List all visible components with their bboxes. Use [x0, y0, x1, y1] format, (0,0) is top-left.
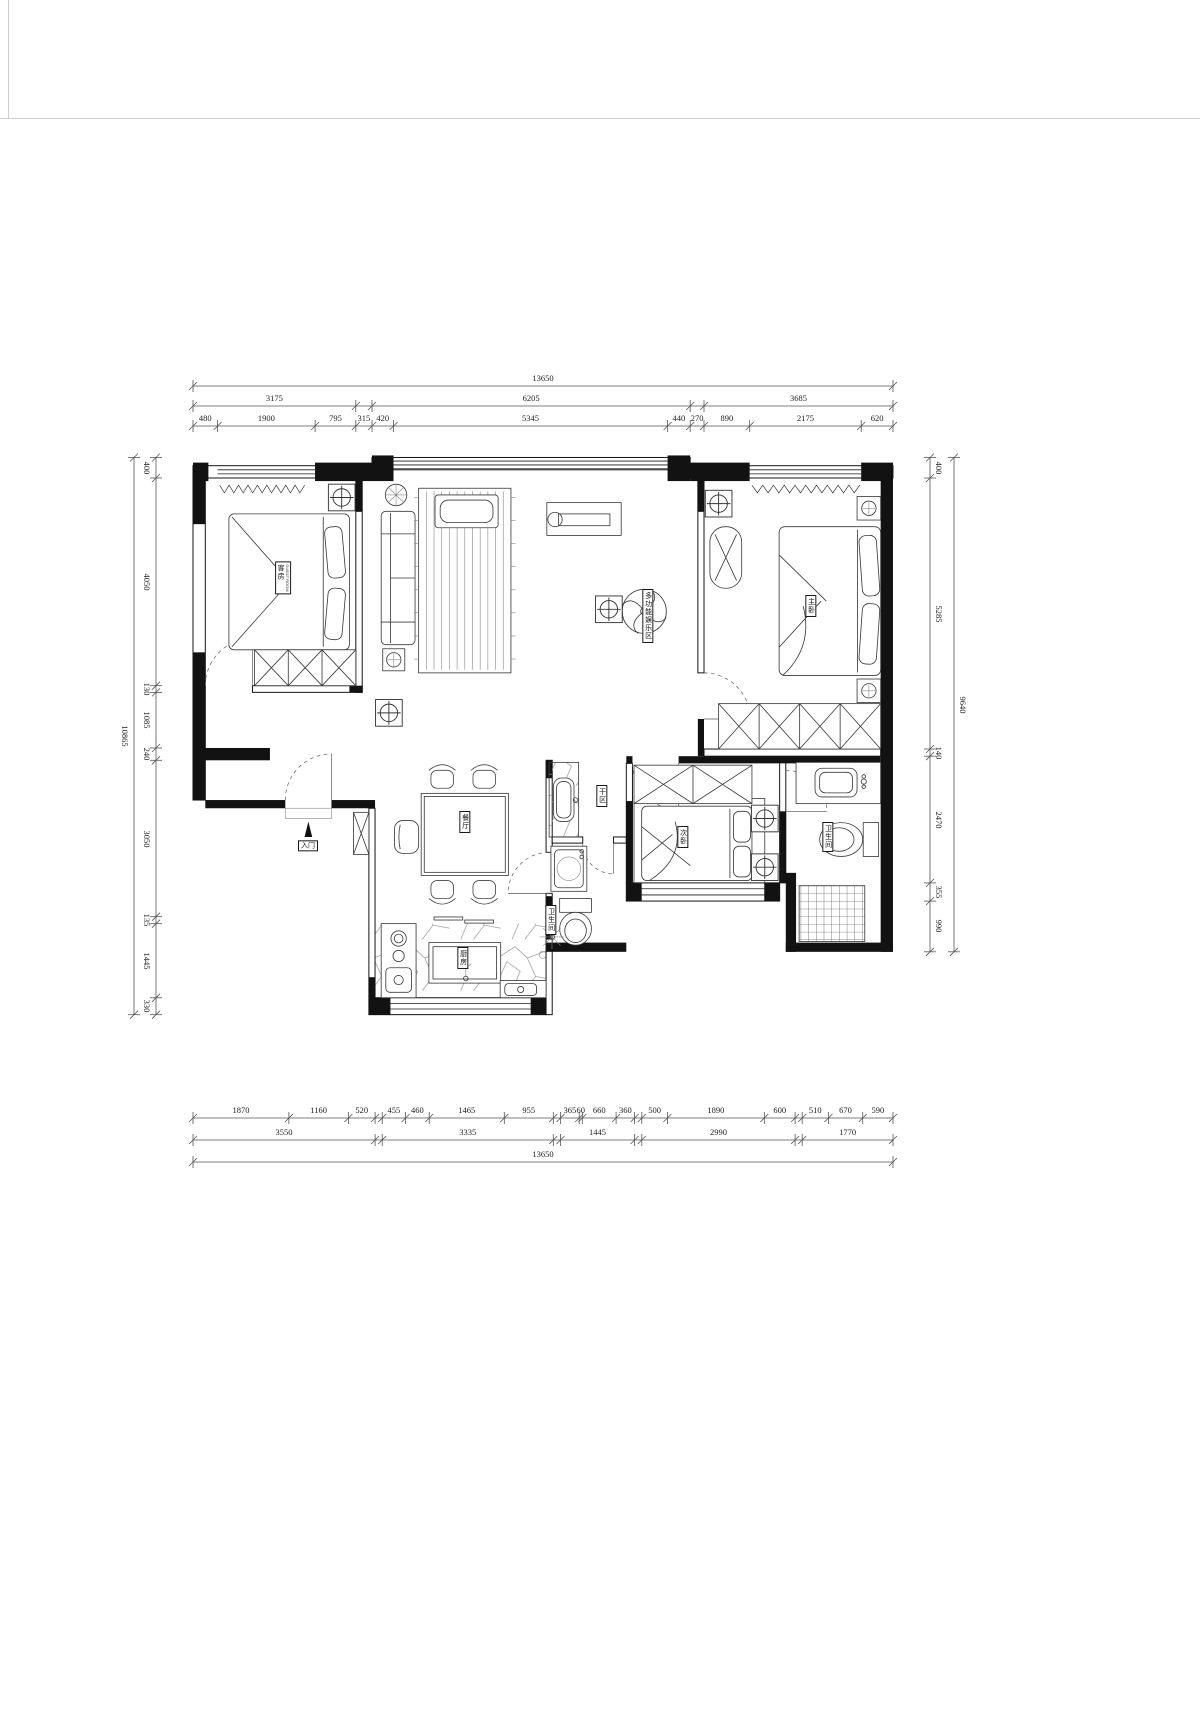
dim-label: 460: [411, 1105, 424, 1115]
room-label-guest: 客房 GUEST ROOM: [275, 561, 291, 594]
dim-label: 140: [934, 746, 944, 759]
dry-area-fixtures: [549, 762, 578, 837]
dim-label: 3335: [459, 1127, 476, 1137]
dim-label: 480: [199, 413, 212, 423]
dim-label: 270: [691, 413, 704, 423]
dim-label: 510: [809, 1105, 822, 1115]
guest-room-name-cn: 客房: [277, 564, 284, 591]
dim-label: 660: [593, 1105, 606, 1115]
dim-label: 10865: [120, 725, 130, 746]
room-label-second-bedroom: 次卧: [677, 826, 688, 848]
dim-label: 500: [648, 1105, 661, 1115]
second-bedroom-furniture: [634, 765, 778, 883]
dim-label: 990: [934, 920, 944, 933]
dim-label: 890: [720, 413, 733, 423]
dim-label: 520: [355, 1105, 368, 1115]
dim-label: 1085: [142, 712, 152, 729]
room-label-bath-right: 卫生间: [822, 822, 833, 852]
dim-label: 620: [871, 413, 884, 423]
dim-label: 1160: [310, 1105, 327, 1115]
dim-label: 4050: [142, 573, 152, 590]
dim-label: 135: [142, 914, 152, 927]
dim-label: 795: [329, 413, 342, 423]
guest-room-name-en: GUEST ROOM: [284, 564, 289, 591]
dim-label: 3050: [142, 830, 152, 847]
entrance-arrow-icon: [305, 822, 313, 837]
dim-label: 440: [673, 413, 686, 423]
dim-label: 420: [376, 413, 389, 423]
dim-label: 2470: [934, 811, 944, 828]
dim-label: 600: [773, 1105, 786, 1115]
dim-label: 3175: [266, 393, 283, 403]
dim-label: 365: [563, 1105, 576, 1115]
dim-label: 1900: [258, 413, 275, 423]
dim-label: 13650: [532, 373, 553, 383]
dim-label: 5285: [934, 605, 944, 622]
dim-label: 3685: [790, 393, 807, 403]
dim-label: 400: [934, 461, 944, 474]
dim-label: 1770: [839, 1127, 856, 1137]
room-label-dining: 餐厅: [459, 811, 470, 833]
room-label-master: 主卧: [805, 595, 816, 617]
floor-plan-svg: [0, 0, 1200, 1709]
dim-label: 3550: [276, 1127, 293, 1137]
room-label-living: 多功能娱乐区: [642, 589, 653, 643]
master-bedroom-furniture: [705, 490, 880, 749]
dining-furniture: [395, 765, 509, 904]
living-room-furniture: [376, 484, 667, 726]
dim-label: 1445: [589, 1127, 606, 1137]
dim-label: 1465: [458, 1105, 475, 1115]
dim-label: 9640: [958, 696, 968, 713]
dim-label: 355: [934, 886, 944, 899]
dim-label: 1870: [232, 1105, 249, 1115]
dim-label: 1445: [142, 952, 152, 969]
dim-label: 670: [839, 1105, 852, 1115]
dim-label: 590: [871, 1105, 884, 1115]
drawing-sheet: 1365031756205368548019007953154205345440…: [0, 0, 1200, 1709]
dim-label: 1890: [707, 1105, 724, 1115]
room-label-entrance: 入门: [298, 840, 318, 851]
dim-label: 955: [522, 1105, 535, 1115]
dim-label: 455: [388, 1105, 401, 1115]
dim-label: 360: [619, 1105, 632, 1115]
dim-label: 2990: [710, 1127, 727, 1137]
guest-room-furniture: [229, 484, 356, 686]
dim-label: 60: [577, 1105, 586, 1115]
dim-label: 315: [358, 413, 371, 423]
dim-label: 240: [142, 748, 152, 761]
right-bathroom-fixtures: [796, 762, 881, 941]
dim-label: 130: [142, 683, 152, 696]
room-label-dry-area: 干区: [596, 785, 607, 807]
room-label-kitchen: 厨房: [457, 947, 468, 969]
dim-label: 2175: [797, 413, 814, 423]
room-label-bath-center: 卫生间: [545, 905, 556, 935]
dim-label: 400: [142, 461, 152, 474]
dim-label: 13650: [532, 1149, 553, 1159]
dim-label: 6205: [523, 393, 540, 403]
dim-label: 330: [142, 1000, 152, 1013]
dim-label: 5345: [522, 413, 539, 423]
